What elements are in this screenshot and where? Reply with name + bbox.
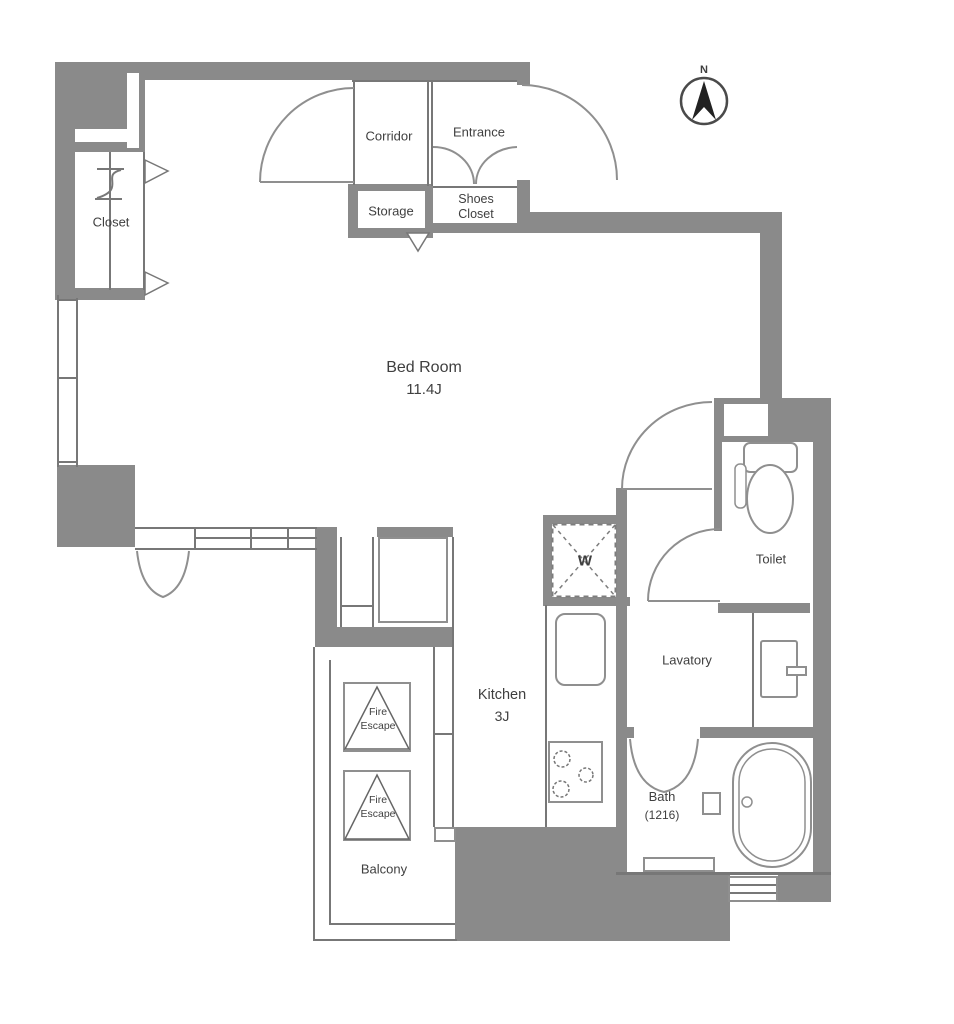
window-line bbox=[135, 527, 317, 529]
room-label-lavatory: Lavatory bbox=[662, 653, 712, 668]
bath-shelf bbox=[702, 792, 721, 815]
door-arc-entry bbox=[522, 85, 617, 180]
window-tick bbox=[57, 377, 78, 379]
door-arc-toilet bbox=[648, 529, 720, 601]
room-label-closet: Closet bbox=[93, 215, 130, 230]
counter-edge-line bbox=[545, 605, 547, 827]
wall-block bbox=[778, 873, 831, 902]
washing-machine-label: W bbox=[578, 553, 592, 570]
duct-shaft bbox=[378, 537, 448, 623]
kitchen-wall-line bbox=[433, 647, 435, 827]
balcony-rail-line bbox=[329, 923, 455, 925]
wall-segment bbox=[813, 420, 831, 902]
wall-segment bbox=[348, 228, 433, 238]
vanity-edge-line bbox=[752, 613, 754, 727]
wall-segment bbox=[543, 515, 552, 605]
kitchen-wall-tick bbox=[433, 733, 454, 735]
door-arc-shoes-left bbox=[433, 147, 474, 184]
closet-arrow-icon bbox=[145, 160, 168, 183]
wall-segment bbox=[616, 488, 627, 878]
room-label-entrance: Entrance bbox=[453, 125, 505, 140]
corner-box bbox=[434, 827, 456, 842]
window-tick bbox=[194, 527, 196, 550]
door-arc-shoes-right bbox=[476, 147, 517, 184]
fire-escape-label: Fire Escape bbox=[360, 793, 395, 821]
balcony-rail-line bbox=[329, 660, 331, 925]
wall-line bbox=[427, 82, 429, 186]
bath-wall-line bbox=[616, 872, 831, 875]
balcony-rail-line bbox=[313, 647, 315, 941]
wall-segment bbox=[543, 515, 618, 524]
wall-notch bbox=[75, 129, 133, 142]
wall-pillar bbox=[57, 465, 135, 547]
floor-plan: Corridor Entrance Storage Shoes Closet C… bbox=[0, 0, 954, 1024]
wall-block bbox=[455, 827, 618, 941]
room-label-toilet: Toilet bbox=[756, 552, 786, 567]
closet-arrow-icon bbox=[145, 272, 168, 295]
window-line bbox=[195, 537, 317, 539]
door-arc-lavatory bbox=[622, 402, 712, 489]
room-label-bedroom: Bed Room 11.4J bbox=[386, 357, 462, 401]
wall-segment bbox=[55, 80, 75, 300]
wall-niche bbox=[724, 404, 768, 436]
window-line bbox=[57, 295, 59, 467]
wall-segment bbox=[718, 603, 810, 613]
balcony-door-line bbox=[372, 537, 374, 627]
wall-segment bbox=[433, 223, 530, 233]
wall-line bbox=[352, 80, 517, 82]
entry-step-line bbox=[730, 892, 776, 894]
entry-step-line bbox=[730, 884, 776, 886]
window-tick bbox=[250, 527, 252, 550]
closet-front-line bbox=[143, 152, 145, 290]
stove-fixture bbox=[548, 741, 603, 803]
toilet-fixture bbox=[735, 443, 797, 533]
wall-line bbox=[353, 82, 355, 185]
balcony-door-tick bbox=[340, 605, 374, 607]
balcony-rail-line bbox=[313, 939, 457, 941]
bathtub-fixture bbox=[733, 743, 811, 867]
room-label-bath: Bath (1216) bbox=[645, 787, 680, 825]
room-label-shoes-closet: Shoes Closet bbox=[458, 192, 493, 222]
room-label-balcony: Balcony bbox=[361, 862, 407, 877]
room-label-storage: Storage bbox=[368, 204, 414, 219]
window-line bbox=[135, 548, 317, 550]
kitchen-sink bbox=[555, 613, 606, 686]
fire-escape-label: Fire Escape bbox=[360, 705, 395, 733]
wall-line bbox=[433, 186, 517, 188]
kitchen-wall-line bbox=[452, 537, 454, 827]
room-label-kitchen: Kitchen 3J bbox=[478, 685, 526, 727]
wall-segment bbox=[348, 184, 433, 191]
window-line bbox=[76, 298, 78, 467]
wall-block bbox=[618, 873, 730, 941]
window-tick bbox=[57, 299, 78, 301]
wall-line bbox=[431, 82, 433, 186]
wall-segment bbox=[517, 62, 530, 85]
wall-segment bbox=[700, 727, 813, 738]
wall-segment bbox=[760, 233, 782, 400]
bath-step bbox=[643, 857, 715, 872]
wall-segment bbox=[616, 727, 634, 738]
door-arc-bedroom bbox=[260, 88, 354, 182]
door-swing-balcony bbox=[137, 551, 189, 597]
balcony-door-line bbox=[340, 537, 342, 627]
wall-segment bbox=[315, 627, 453, 647]
window-tick bbox=[57, 461, 78, 463]
north-needle bbox=[692, 81, 716, 120]
wall-segment bbox=[714, 441, 722, 531]
compass-icon bbox=[681, 78, 727, 124]
wall-segment bbox=[543, 597, 630, 606]
washbasin-handle bbox=[786, 666, 807, 676]
entry-steps bbox=[728, 876, 778, 902]
window-tick bbox=[287, 527, 289, 550]
wall-segment bbox=[517, 212, 782, 233]
compass-north-label: N bbox=[700, 64, 708, 76]
wall-segment bbox=[377, 527, 453, 537]
room-label-corridor: Corridor bbox=[366, 129, 413, 144]
door-swing-bath bbox=[630, 739, 698, 792]
